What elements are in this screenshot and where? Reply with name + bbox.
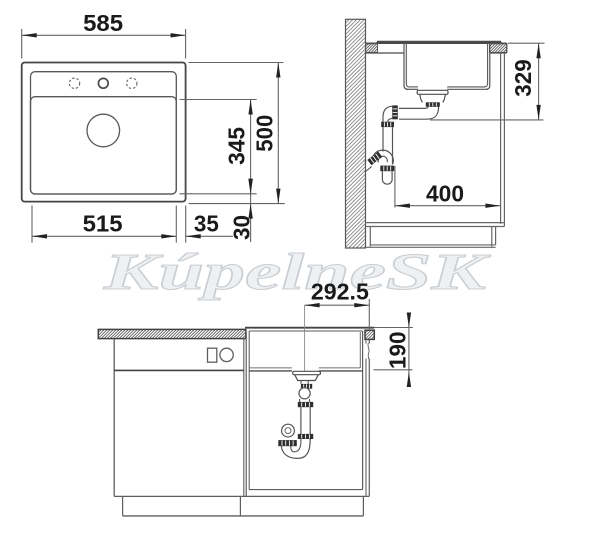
svg-text:35: 35 (194, 211, 219, 237)
svg-text:585: 585 (83, 10, 123, 36)
svg-text:500: 500 (251, 115, 277, 152)
svg-text:515: 515 (83, 211, 123, 237)
svg-text:329: 329 (510, 59, 536, 97)
svg-text:400: 400 (426, 180, 464, 206)
svg-text:292.5: 292.5 (311, 279, 369, 305)
svg-text:190: 190 (385, 331, 411, 369)
svg-text:KúpelneSK: KúpelneSK (102, 244, 491, 301)
svg-text:345: 345 (223, 127, 249, 165)
